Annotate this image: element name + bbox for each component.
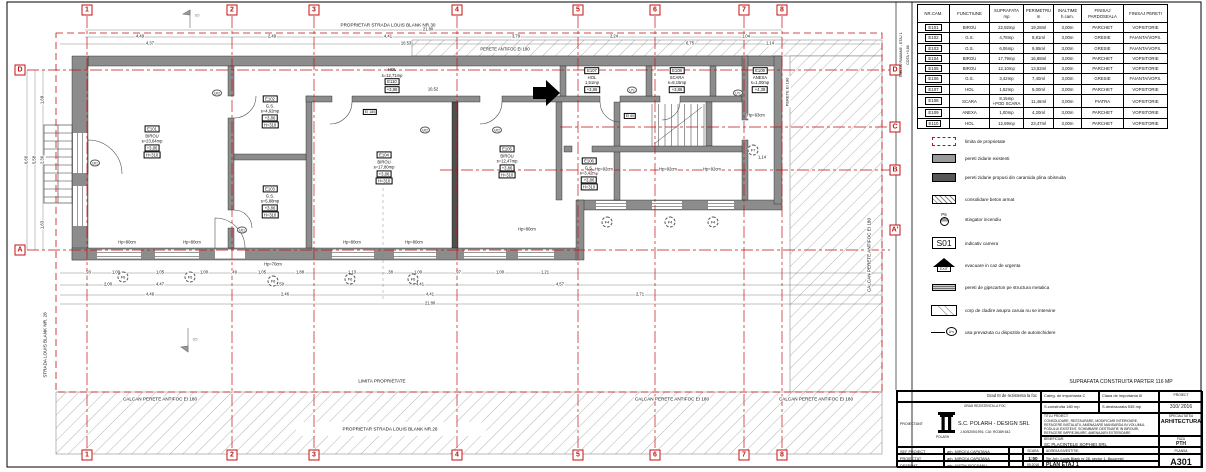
room-label-E103: E103G.S.s=5,88mp+3,86H=310 — [261, 185, 280, 218]
cell: 12,69mp — [990, 118, 1024, 128]
dimension: 2,24 — [610, 35, 619, 40]
dimension: 4,41 — [384, 35, 393, 40]
door-tag: U02 — [492, 127, 502, 134]
total-area-value: S.desfasurata 535 mp — [1099, 402, 1159, 413]
room-id-badge: E108 — [925, 97, 941, 104]
room-label-E108: E108SCARAs=8,15mp+3,86 — [668, 67, 687, 93]
room-function: HOL — [388, 67, 397, 72]
fire-grade-small-label: GRAD REZISTENTA LA FOC — [964, 405, 1006, 409]
cell: VOPSITORIE — [1124, 94, 1168, 107]
legend-label: indicativ camera — [965, 241, 998, 246]
room-function: BIROU — [145, 133, 158, 138]
cell: 7,40ml — [1024, 74, 1054, 84]
room-area: s=5,88mp — [261, 198, 280, 203]
role-label: SEF PROIECT — [897, 447, 944, 454]
exit-sign-icon: EXIT — [937, 266, 951, 272]
property-limit-label: LIMITA PROPRIETATE — [358, 378, 405, 383]
room-function: SCARA — [670, 75, 684, 80]
sill-height-label: Hp=80cm — [183, 241, 202, 246]
room-level: +4,39 — [752, 86, 768, 93]
room-level: +3,86 — [262, 114, 278, 121]
cell: 12,10mp — [990, 64, 1024, 74]
room-id-badge: E106 — [925, 75, 941, 82]
cell: 17,79mp — [990, 53, 1024, 63]
dimension: 1,14 — [766, 42, 775, 47]
room-schedule-table: NR.CAM. FUNCTIUNE SUPRAFATA mp PERIMETRU… — [917, 4, 1168, 129]
legend-label: consolidare beton armat — [965, 197, 1014, 202]
legend-item-concrete: consolidare beton armat — [931, 195, 1014, 204]
room-id: E102 — [263, 95, 278, 102]
importance-class: Clasa de importanta III — [1099, 391, 1159, 402]
cell: 16,88ml — [1024, 53, 1054, 63]
designer-role-label: PROIECTANT — [900, 422, 923, 426]
scale-label: SCARA — [1023, 447, 1043, 454]
cell: PARCHET — [1082, 84, 1124, 94]
drawing-sheet: 1 2 3 4 5 6 7 8 1 2 3 4 5 6 7 8 D A D C … — [0, 0, 1206, 472]
room-height: H=310 — [498, 172, 515, 179]
cell: HOL — [950, 118, 990, 128]
untouched-building-icon — [931, 305, 957, 316]
grid-bubble-bottom-6: 6 — [650, 450, 661, 461]
phase-value: PTH — [1176, 441, 1186, 447]
owner-label-top: PROPRIETAR STRADA LOUIS BLANK NR.30 — [341, 22, 436, 27]
grid-bubble-top-5: 5 — [573, 5, 584, 16]
room-level: +3,86 — [376, 170, 392, 177]
grid-bubble-bottom-1: 1 — [82, 450, 93, 461]
calcan-label-3: CALCAN PERETE ANTIFOC EI 180 — [778, 396, 854, 401]
legend-item-selfclosing-door: U*cusa prevazuta cu dispozitiv de autoin… — [931, 327, 1055, 337]
cell: GRESIE — [1082, 33, 1124, 43]
column-header: FINISAJ PARDOSEALA — [1082, 5, 1124, 23]
cell: GRESIE — [1082, 74, 1124, 84]
specialty-value: ARHITECTURA — [1161, 419, 1201, 425]
room-function: ANEXA — [753, 75, 767, 80]
door-tag: U*c — [733, 90, 743, 97]
tablou-label-2: COTA +3,86 — [906, 45, 910, 65]
room-id: E110 — [385, 78, 399, 85]
door-tag: U01 — [237, 227, 247, 234]
calcan-label-1: CALCAN PERETE ANTIFOC EI 180 — [122, 396, 198, 401]
column-tag: F4 — [708, 217, 719, 228]
cell: 3,00m — [1054, 94, 1082, 107]
table-row: E101BIROU22,92mp19,28ml3,00mPARCHETVOPSI… — [918, 23, 1168, 33]
tablou-label-1: TABLOU RAMANE - ETAJ 1 — [899, 32, 903, 77]
date-value: 09.2016 — [1023, 461, 1043, 468]
dimension: 1,69 — [41, 96, 46, 105]
cell: 3,42mp — [990, 74, 1024, 84]
column-header: FINISAJ PERETI — [1124, 5, 1168, 23]
dimension: 4,41 — [416, 283, 425, 288]
grid-bubble-bottom-7: 7 — [739, 450, 750, 461]
room-height: H=310 — [580, 184, 597, 191]
column-header: INALTIME h.cam. — [1054, 5, 1082, 23]
legend-item-property-limit: limita de proprietate — [931, 137, 1005, 146]
cell: 8,81ml — [1024, 33, 1054, 43]
room-level: +3,86 — [581, 176, 597, 183]
grid-bubble-top-6: 6 — [650, 5, 661, 16]
room-area: s=12,71mp — [382, 73, 403, 78]
door-tag: U02 — [420, 127, 430, 134]
room-indicator-icon: S01 — [932, 237, 955, 249]
person-name: arh. MIRCEA CAPATANA — [944, 447, 1009, 454]
column-tag: F6 — [408, 274, 419, 285]
reinforced-concrete-icon — [932, 195, 956, 204]
room-id-badge: E101 — [925, 24, 941, 31]
cell: VOPSITORIE — [1124, 53, 1168, 63]
room-function: BIROU — [500, 153, 513, 158]
room-id: E104 — [377, 151, 392, 158]
room-function: G.S. — [266, 103, 274, 108]
column-tag: F6 — [185, 272, 196, 283]
fire-extinguisher-icon — [940, 217, 949, 226]
legend-label: pereti zidarie propusi din caramida plin… — [965, 175, 1066, 180]
dimension: 6,66 — [25, 156, 30, 165]
project-title: CONSOLIDARE, RESTAURARE, MODIFICARI INTE… — [1044, 419, 1156, 435]
sill-height-label: Hp=93cm — [747, 114, 766, 119]
room-id: E105 — [500, 145, 515, 152]
door-tag: U*c — [627, 87, 637, 94]
specialty-cell: SPECIALITATEA ARHITECTURA — [1159, 413, 1203, 436]
dimension: 10,53 — [400, 42, 411, 47]
section-label-top: S5 — [195, 14, 200, 19]
legend-label: limita de proprietate — [965, 139, 1005, 144]
dimension: 1,63 — [41, 221, 46, 230]
dimension: 10,52 — [427, 88, 438, 93]
cell: 13,92ml — [1024, 64, 1054, 74]
grid-bubble-bottom-3: 3 — [309, 450, 320, 461]
sill-height-label: Hp=92cm — [659, 168, 678, 173]
cell: G.S. — [950, 33, 990, 43]
cell: BIROU — [950, 23, 990, 33]
table-header-row: NR.CAM. FUNCTIUNE SUPRAFATA mp PERIMETRU… — [918, 5, 1168, 23]
cell: G.S. — [950, 74, 990, 84]
dimension: 1,05 — [156, 271, 165, 276]
legend-item-drywall: pereti de gipscarton pe structura metali… — [931, 284, 1049, 291]
cell: PARCHET — [1082, 118, 1124, 128]
legend-label: evacuare in caz de urgenta — [965, 263, 1020, 268]
room-area: s=17,80mp — [374, 164, 395, 169]
cell: 1,00mp — [990, 108, 1024, 118]
room-level: +3,86 — [262, 204, 278, 211]
room-label-E107: E107HOL1,51mp+3,86 — [584, 67, 600, 93]
legend-item-extinguisher: P6stingator incendiu — [931, 212, 1001, 226]
cell: 19,28ml — [1024, 23, 1054, 33]
proposed-wall-icon — [932, 173, 956, 182]
project-number-label: PROIECT — [1159, 391, 1203, 402]
cell: 1,52mp — [990, 84, 1024, 94]
room-id-badge: E107 — [925, 86, 941, 93]
firewall-label-top: PERETE ANTIFOC EI 180 — [479, 48, 530, 53]
drywall-icon — [932, 284, 956, 291]
cell: 11,46ml — [1024, 94, 1054, 107]
legend-label: stingator incendiu — [965, 217, 1001, 222]
cell: HOL — [950, 84, 990, 94]
cell: G.S. — [950, 43, 990, 53]
room-level: +3,86 — [499, 164, 515, 171]
built-area-value: S.construita 180 mp — [1041, 402, 1099, 413]
room-function: G.S. — [585, 165, 593, 170]
room-id-badge: E104 — [925, 55, 941, 62]
dimension: 1,00 — [200, 271, 209, 276]
logo-caption: POLARH — [936, 436, 949, 440]
cell: 3,00m — [1054, 108, 1082, 118]
cell: 3,00m — [1054, 84, 1082, 94]
dimension: 1,04 — [742, 35, 751, 40]
cell: 3,00m — [1054, 33, 1082, 43]
room-function: BIROU — [377, 159, 390, 164]
room-height: H=310 — [375, 178, 392, 185]
selfclosing-door-icon: U*c — [931, 327, 957, 337]
room-area: s=12,47mp — [497, 158, 518, 163]
grid-bubble-top-8: 8 — [777, 5, 788, 16]
room-area: 1,51mp — [585, 80, 599, 85]
grid-bubble-right-B: B — [890, 165, 901, 176]
cell: 3,00m — [1054, 64, 1082, 74]
table-row: E102G.S.4,78mp8,81ml3,00mGRESIEFAIANTA/V… — [918, 33, 1168, 43]
cell: BIROU — [950, 64, 990, 74]
grid-bubble-right-A1: A' — [890, 225, 901, 236]
grid-bubble-top-3: 3 — [309, 5, 320, 16]
dimension: 4,49 — [146, 293, 155, 298]
existing-wall-icon — [932, 154, 956, 163]
signature-cell — [1009, 454, 1023, 461]
sheet-label: PLANSA — [1159, 447, 1203, 454]
signature-cell — [1009, 447, 1023, 454]
dimension: 4,57 — [556, 283, 565, 288]
exterior-stair — [44, 125, 72, 203]
grid-bubble-left-A: A — [15, 245, 26, 256]
sill-height-label: Hp=80cm — [343, 241, 362, 246]
room-id-badge: E110 — [926, 120, 942, 127]
sill-height-label: Hp=92cm — [703, 168, 722, 173]
column-tag: F4 — [665, 217, 676, 228]
section-label-bottom: S5 — [193, 338, 198, 343]
cell: BIROU — [950, 53, 990, 63]
legend-label: pereti zidarie existenti — [965, 156, 1009, 161]
legend-item-existing-walls: pereti zidarie existenti — [931, 154, 1009, 163]
table-row: E109ANEXA1,00mp4,20ml3,00mPARCHETVOPSITO… — [918, 108, 1168, 118]
dimension: 1,88 — [296, 271, 305, 276]
dimension: 2,46 — [281, 293, 290, 298]
column-tag: F6 — [268, 276, 279, 287]
dimension: ,97 — [455, 271, 462, 276]
legend-item-proposed-walls: pereti zidarie propusi din caramida plin… — [931, 173, 1066, 182]
cell: SCARA — [950, 94, 990, 107]
room-height: H=310 — [261, 122, 278, 129]
legend-item-evacuation: EXITevacuare in caz de urgenta — [931, 258, 1020, 272]
dimension: 2,71 — [636, 293, 645, 298]
room-label-E105: E105BIROUs=12,47mp+3,86H=310 — [497, 145, 518, 178]
legend-item-room-indicator: S01indicativ camera — [931, 237, 998, 249]
room-id: E107 — [585, 67, 600, 74]
dimension: ,93 — [85, 271, 92, 276]
site-address: Str. Arh. Louis Blank nr 28, sector 1, B… — [1043, 454, 1159, 461]
dimension: 1,14 — [758, 156, 767, 161]
fire-resistance-grade: Grad III de rezistenta la foc — [897, 391, 1041, 402]
cell: PARCHET — [1082, 53, 1124, 63]
legend-label: corp de cladire asupra caruia nu se inte… — [965, 308, 1055, 313]
dimension: 3,79 — [512, 35, 521, 40]
property-limit-icon — [932, 137, 956, 146]
room-area: s=1,00mp — [751, 80, 770, 85]
cell: 3,00m — [1054, 74, 1082, 84]
room-function: HOL — [588, 75, 597, 80]
room-id: E103 — [263, 185, 278, 192]
cell: 5,00ml — [1024, 84, 1054, 94]
person-name: arh. IUSTIN ROCSANU — [944, 461, 1009, 468]
table-row: E106G.S.3,42mp7,40ml3,00mGRESIEFAIANTA/V… — [918, 74, 1168, 84]
cell: 6,06mp — [990, 43, 1024, 53]
cell: VOPSITORIE — [1124, 23, 1168, 33]
room-height: H=310 — [261, 212, 278, 219]
table-row: E110HOL12,69mp23,47ml3,00mPARCHETVOPSITO… — [918, 118, 1168, 128]
room-id-badge: E105 — [925, 65, 941, 72]
cell: GRESIE — [1082, 43, 1124, 53]
grid-bubble-bottom-4: 4 — [452, 450, 463, 461]
dimension: 6,75 — [686, 42, 695, 47]
room-id: E108 — [670, 67, 685, 74]
fire-rating-label: EI 180 — [363, 109, 377, 115]
room-label-E109: E109ANEXAs=1,00mp+4,39 — [751, 67, 770, 93]
legend-item-untouched-body: corp de cladire asupra caruia nu se inte… — [931, 305, 1055, 316]
dimension: ,38 — [387, 271, 394, 276]
column-header: PERIMETRU m — [1024, 5, 1054, 23]
door-tag: U01 — [90, 160, 100, 167]
grid-bubble-left-D: D — [15, 65, 26, 76]
importance-category: Categ. de importanta C — [1041, 391, 1099, 402]
table-row: E105BIROU12,10mp13,92ml3,00mPARCHETVOPSI… — [918, 64, 1168, 74]
cell: PARCHET — [1082, 23, 1124, 33]
table-row: E107HOL1,52mp5,00ml3,00mPARCHETVOPSITORI… — [918, 84, 1168, 94]
table-row: E108SCARA8,15mp +POD SCARA11,46ml3,00mPI… — [918, 94, 1168, 107]
room-id: E109 — [753, 67, 768, 74]
grid-bubble-right-C: C — [890, 122, 901, 133]
room-area: s=8,15mp — [668, 80, 687, 85]
cell: 4,78mp — [990, 33, 1024, 43]
cell: 3,00m — [1054, 43, 1082, 53]
cell: VOPSITORIE — [1124, 118, 1168, 128]
cell: VOPSITORIE — [1124, 108, 1168, 118]
cell: 3,00m — [1054, 53, 1082, 63]
firm-registration: J 40/5205/1991; CUI: RO389 642 — [960, 431, 1010, 435]
table-row: E104BIROU17,79mp16,88ml3,00mPARCHETVOPSI… — [918, 53, 1168, 63]
column-header: FUNCTIUNE — [950, 5, 990, 23]
room-level: +3,86 — [669, 86, 685, 93]
sill-height-label: Hp=80cm — [405, 241, 424, 246]
street-label: STRADA LOUIS BLANK NR. 28 — [42, 312, 47, 377]
room-id: E106 — [582, 157, 597, 164]
cell: VOPSITORIE — [1124, 84, 1168, 94]
cell: FAIANTA/VOPS. — [1124, 33, 1168, 43]
column-header: SUPRAFATA mp — [990, 5, 1024, 23]
room-area: s=4,62mp — [261, 108, 280, 113]
legend-label: usa prevazuta cu dispozitiv de autoinchi… — [965, 330, 1055, 335]
room-label-E104: E104BIROUs=17,80mp+3,86H=310 — [374, 151, 395, 184]
dimension: 1,21 — [541, 271, 550, 276]
firm-name: S.C. POLARH - DESIGN SRL — [958, 421, 1030, 427]
dimension: ,49 — [231, 271, 238, 276]
dimension: 4,41 — [426, 293, 435, 298]
site-address-label: ADRESA INVESTITIE: — [1043, 447, 1159, 454]
polarh-logo-icon — [938, 412, 955, 436]
room-level: +3,86 — [384, 86, 400, 93]
cell: FAIANTA/VOPS. — [1124, 74, 1168, 84]
grid-bubble-top-7: 7 — [739, 5, 750, 16]
dimension: 2,36 — [41, 156, 46, 165]
role-label: DESENAT — [897, 461, 944, 468]
calcan-label-2: CALCAN PERETE ANTIFOC EI 180 — [634, 396, 710, 401]
grid-bubble-bottom-5: 5 — [573, 450, 584, 461]
phase-cell: FAZA PTH — [1159, 436, 1203, 447]
calcan-label-right: CALCAN PERETE ANTIFOC EI 180 — [866, 217, 871, 293]
firewall-label-right: PERETE EI 180 — [786, 77, 791, 108]
cell: 8,15mp +POD SCARA — [990, 94, 1024, 107]
column-tag: F6 — [118, 272, 129, 283]
cell: 23,47ml — [1024, 118, 1054, 128]
column-tag: F4 — [602, 217, 613, 228]
designer-cell: PROIECTANT GRAD REZISTENTA LA FOC POLARH… — [897, 402, 1041, 447]
person-name: arh. MIRCEA CAPATANA — [944, 454, 1009, 461]
room-area: s=23,64mp — [142, 138, 163, 143]
dimension: 2,49 — [268, 35, 277, 40]
role-label: PROIECTAT — [897, 454, 944, 461]
column-tag: F6 — [345, 274, 356, 285]
door-tag: U02 — [212, 90, 222, 97]
cell: 22,92mp — [990, 23, 1024, 33]
dimension: 4,47 — [156, 283, 165, 288]
scale-value: 1:50 — [1023, 454, 1043, 461]
dimension: 1,05 — [258, 271, 267, 276]
room-id-badge: E102 — [925, 34, 941, 41]
client-name: SC PLACINTELE SOPHIEI SRL — [1044, 442, 1107, 447]
grid-bubble-bottom-2: 2 — [227, 450, 238, 461]
grid-bubble-bottom-8: 8 — [777, 450, 788, 461]
owner-label-bottom: PROPRIETAR STRADA LOUIS BLANK NR.26 — [342, 426, 439, 431]
room-level: +3,86 — [144, 144, 160, 151]
dimension: 4,49 — [136, 35, 145, 40]
cell: 3,00m — [1054, 118, 1082, 128]
dimension-total-top: 21,80 — [422, 28, 433, 33]
grid-bubble-top-4: 4 — [452, 5, 463, 16]
sill-height-label: Hp=92cm — [595, 168, 614, 173]
signature-cell — [1009, 461, 1023, 468]
title-block: Grad III de rezistenta la foc Categ. de … — [896, 390, 1202, 467]
project-title-cell: TITLU PROIECT: CONSOLIDARE, RESTAURARE, … — [1041, 413, 1159, 436]
cell: PARCHET — [1082, 64, 1124, 74]
column-header: NR.CAM. — [918, 5, 950, 23]
drawing-title: PLAN ETAJ 1 — [1043, 461, 1159, 468]
room-label-E101: E101BIROUs=23,64mp+3,86H=310 — [142, 125, 163, 158]
project-number: 310/ 2016 — [1159, 402, 1203, 413]
room-id-badge: E109 — [925, 109, 941, 116]
sill-height-label: Hp=80cm — [518, 228, 537, 233]
legend-label: pereti de gipscarton pe structura metali… — [965, 285, 1049, 290]
dimension-total-bottom: 21,80 — [424, 302, 435, 307]
sill-height-label: Hp=70cm — [264, 263, 283, 268]
cell: PIATRA — [1082, 94, 1124, 107]
fire-rating-label: EI 60 — [624, 113, 636, 119]
grid-bubble-top-1: 1 — [82, 5, 93, 16]
table-row: E103G.S.6,06mp9,85ml3,00mGRESIEFAIANTA/V… — [918, 43, 1168, 53]
room-function: G.S. — [266, 193, 274, 198]
cell: ANEXA — [950, 108, 990, 118]
cell: 3,00m — [1054, 23, 1082, 33]
cell: VOPSITORIE — [1124, 64, 1168, 74]
room-id: E101 — [145, 125, 160, 132]
dimension: 1,00 — [496, 271, 505, 276]
cell: PARCHET — [1082, 108, 1124, 118]
column-tag: F7 — [748, 145, 759, 156]
